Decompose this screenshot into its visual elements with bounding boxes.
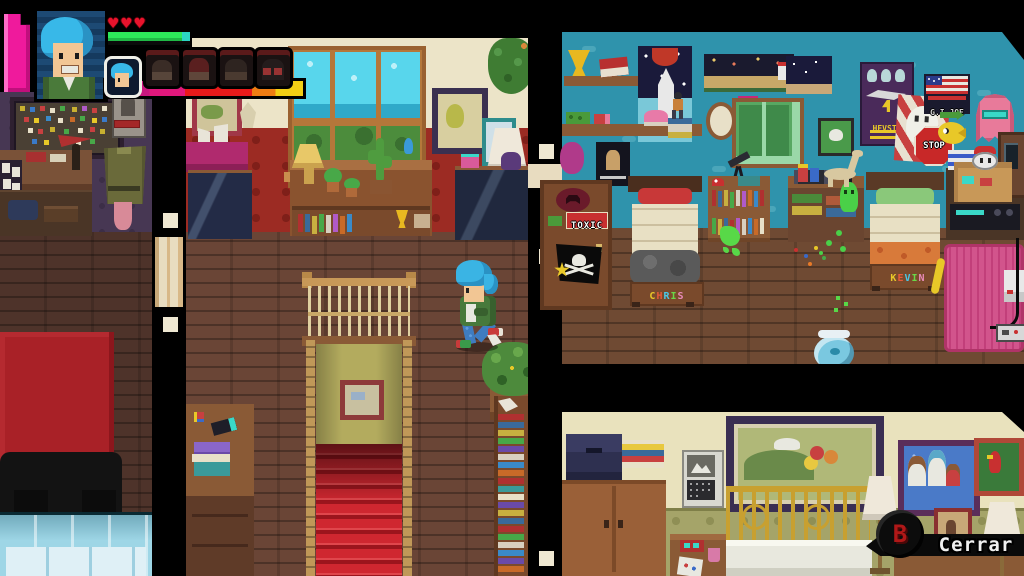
kids-room: TOXIC CHRIS bbox=[562, 0, 1024, 412]
party-slot-2 bbox=[143, 47, 182, 89]
pillow-red bbox=[638, 188, 692, 204]
wall-node bbox=[161, 315, 180, 334]
pirate-flag bbox=[556, 244, 602, 284]
portrait-kid bbox=[946, 464, 960, 486]
bed-chris: CHRIS bbox=[628, 176, 702, 306]
dino-skeleton bbox=[820, 150, 866, 188]
b-button-label: B bbox=[893, 520, 907, 548]
hud: ♥♥♥ bbox=[0, 0, 320, 110]
slime-drip bbox=[720, 226, 740, 246]
side-door bbox=[155, 237, 183, 307]
stairs-steps bbox=[316, 444, 402, 576]
game-screen: TOXIC CHRIS bbox=[0, 0, 1024, 576]
fish-decor bbox=[938, 122, 966, 144]
wall-node bbox=[161, 211, 180, 230]
bed-name-chris: CHRIS bbox=[649, 291, 684, 302]
alien-poster-number bbox=[882, 100, 890, 112]
stairwell-picture bbox=[340, 380, 384, 420]
balusters bbox=[308, 286, 410, 342]
clothes-pile bbox=[630, 250, 700, 284]
space-beach-poster bbox=[786, 56, 832, 94]
action-figure bbox=[670, 92, 686, 120]
close-prompt[interactable]: B Cerrar bbox=[866, 508, 1024, 560]
ghost-glasses bbox=[982, 110, 1008, 119]
tall-bookshelf bbox=[494, 396, 528, 576]
bed-name-kevin: KEVIN bbox=[890, 273, 925, 284]
bean-bag bbox=[560, 142, 584, 174]
skull bbox=[572, 254, 586, 266]
portrait-jacket bbox=[43, 77, 95, 99]
book-shelf-low bbox=[292, 206, 430, 236]
map-decor bbox=[738, 176, 760, 186]
robot-alarm-clock bbox=[970, 146, 1000, 172]
stair-rail-right bbox=[403, 340, 412, 576]
brass-bed bbox=[724, 486, 872, 576]
family-portrait bbox=[898, 440, 980, 516]
display-case bbox=[188, 170, 252, 239]
army-men bbox=[566, 112, 590, 124]
toxic-sign: TOXIC bbox=[566, 212, 608, 229]
orange-blanket bbox=[870, 242, 940, 266]
calendar bbox=[682, 450, 724, 508]
shelf-books bbox=[599, 57, 629, 78]
hall-desk bbox=[186, 404, 254, 576]
nightstand bbox=[670, 534, 726, 576]
party-slot-selected bbox=[104, 56, 142, 98]
red-toys bbox=[594, 114, 610, 124]
player-character bbox=[452, 258, 508, 354]
party-slot-3 bbox=[180, 47, 219, 89]
player-front-shoe bbox=[456, 340, 471, 348]
wardrobe bbox=[562, 436, 666, 576]
right-cabinet bbox=[455, 166, 528, 240]
study-drawers bbox=[0, 190, 92, 236]
military-jacket bbox=[104, 146, 146, 204]
kid-drawing bbox=[677, 556, 703, 576]
baseball-poster bbox=[704, 54, 794, 92]
pink-mug bbox=[708, 548, 720, 562]
room-band-wall bbox=[562, 364, 1024, 412]
portrait-mom bbox=[908, 456, 926, 486]
trophy-small bbox=[396, 210, 408, 228]
blanket bbox=[632, 204, 698, 256]
player-arm bbox=[474, 308, 488, 316]
prompt-label: Cerrar bbox=[939, 534, 1014, 556]
baseball-player bbox=[778, 62, 786, 80]
toxic-sign-text: TOXIC bbox=[571, 221, 603, 231]
console-cable bbox=[990, 238, 1019, 329]
character-portrait bbox=[34, 8, 108, 102]
invader-picture bbox=[556, 188, 590, 212]
pink-meter bbox=[4, 14, 30, 92]
poster-planet bbox=[652, 48, 678, 66]
bottle bbox=[72, 144, 80, 170]
flag-poster: G.I.JOE bbox=[924, 74, 970, 114]
cactus bbox=[376, 138, 384, 182]
trophy-shelf bbox=[564, 76, 640, 86]
stairwell-wall bbox=[316, 344, 402, 444]
parrot-picture bbox=[974, 438, 1024, 496]
prompt-label-wrap: Cerrar bbox=[928, 534, 1024, 556]
trunk bbox=[44, 206, 78, 222]
stop-sign-text: STOP bbox=[923, 141, 945, 151]
money-sticker bbox=[548, 216, 562, 226]
book-stack bbox=[194, 442, 230, 476]
bedding bbox=[724, 540, 872, 576]
pink-cloth bbox=[114, 202, 132, 230]
footboard: CHRIS bbox=[630, 282, 704, 306]
mushroom-decor bbox=[712, 178, 724, 186]
wall-node bbox=[537, 142, 556, 161]
shelf-papers bbox=[498, 398, 518, 412]
slime-splatter bbox=[836, 230, 842, 236]
pink-book bbox=[461, 154, 479, 168]
confetti bbox=[794, 248, 798, 252]
papers bbox=[50, 154, 66, 162]
folded-clothes bbox=[622, 440, 664, 468]
suitcases bbox=[566, 434, 622, 480]
health-cap bbox=[182, 32, 190, 41]
book-pile bbox=[668, 118, 692, 138]
green-bits bbox=[836, 296, 840, 300]
navy-bag bbox=[8, 200, 38, 220]
robot-toys bbox=[798, 160, 820, 186]
red-box bbox=[26, 152, 46, 162]
glass-table bbox=[0, 512, 152, 576]
wall-node bbox=[537, 549, 556, 568]
toxic-door: TOXIC bbox=[540, 180, 612, 310]
party-slot-4 bbox=[217, 47, 256, 89]
rubiks-cube bbox=[194, 412, 204, 422]
staircase bbox=[302, 270, 416, 576]
portrait-dad bbox=[928, 450, 946, 486]
gamepad bbox=[996, 324, 1024, 342]
stair-railing bbox=[302, 278, 416, 286]
bed-kevin: KEVIN bbox=[866, 172, 944, 294]
abstract-picture bbox=[432, 88, 488, 154]
purple-bag bbox=[501, 152, 521, 170]
health-bar bbox=[106, 30, 192, 47]
magenta-cabinet bbox=[186, 142, 248, 172]
portrait-face bbox=[53, 43, 83, 79]
stair-rail-left bbox=[306, 340, 315, 576]
party-slot-5 bbox=[254, 47, 293, 89]
glasses-case bbox=[680, 540, 704, 552]
pink-cake bbox=[644, 110, 668, 126]
blue-bird bbox=[404, 138, 413, 154]
b-button-icon[interactable]: B bbox=[876, 510, 924, 558]
stereo bbox=[950, 204, 1020, 230]
health-fill bbox=[108, 32, 182, 41]
